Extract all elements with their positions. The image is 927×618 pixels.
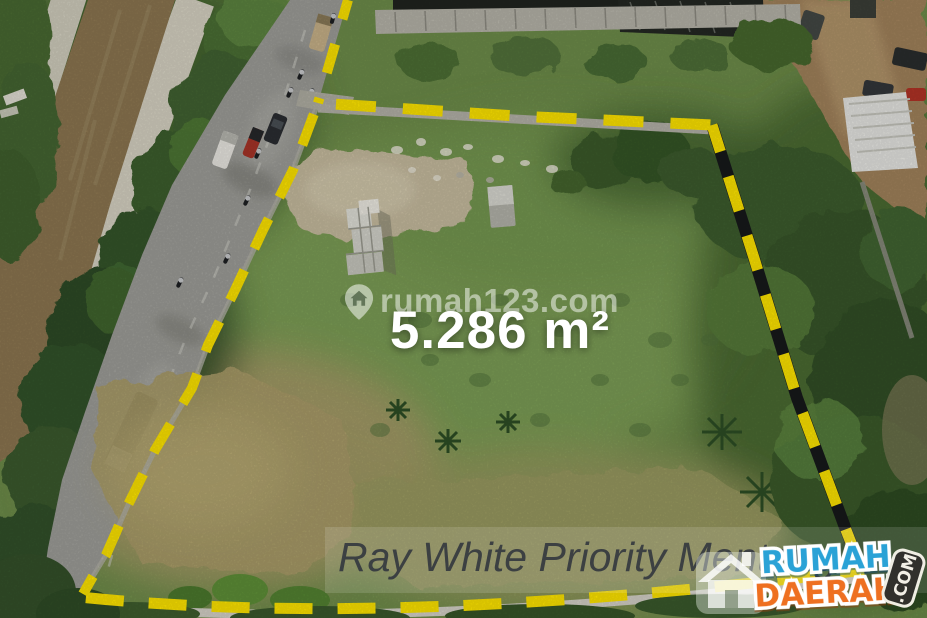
logo-word-daerah: DAERAH (754, 571, 900, 615)
area-label: 5.286 m² (355, 300, 645, 361)
aerial-photo: rumah123.com 5.286 m² Ray White Priority… (0, 0, 927, 618)
site-logo: RUMAH DAERAH .COM (690, 536, 927, 618)
